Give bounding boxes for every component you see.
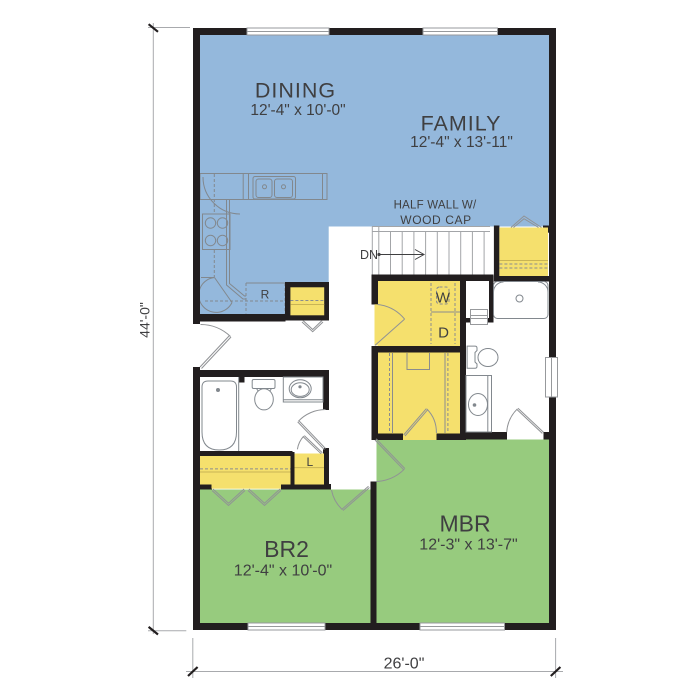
svg-text:W: W	[436, 290, 451, 307]
svg-text:WOOD CAP: WOOD CAP	[400, 213, 471, 227]
svg-text:12'-3" x 13'-7": 12'-3" x 13'-7"	[419, 537, 517, 554]
svg-text:26'-0": 26'-0"	[384, 656, 425, 673]
svg-text:MBR: MBR	[439, 511, 490, 537]
svg-text:12'-4" x 10'-0": 12'-4" x 10'-0"	[250, 102, 345, 119]
svg-text:12'-4" x 13'-11": 12'-4" x 13'-11"	[410, 134, 513, 151]
svg-text:FAMILY: FAMILY	[421, 112, 502, 136]
svg-text:D: D	[438, 325, 449, 342]
svg-text:DINING: DINING	[255, 79, 336, 103]
svg-text:R: R	[261, 288, 270, 302]
svg-text:BR2: BR2	[264, 536, 309, 562]
svg-text:12'-4" x 10'-0": 12'-4" x 10'-0"	[234, 563, 332, 580]
svg-text:DN: DN	[360, 248, 378, 262]
svg-text:L: L	[306, 455, 313, 469]
svg-text:HALF WALL W/: HALF WALL W/	[394, 200, 477, 212]
svg-text:44'-0": 44'-0"	[137, 302, 153, 338]
